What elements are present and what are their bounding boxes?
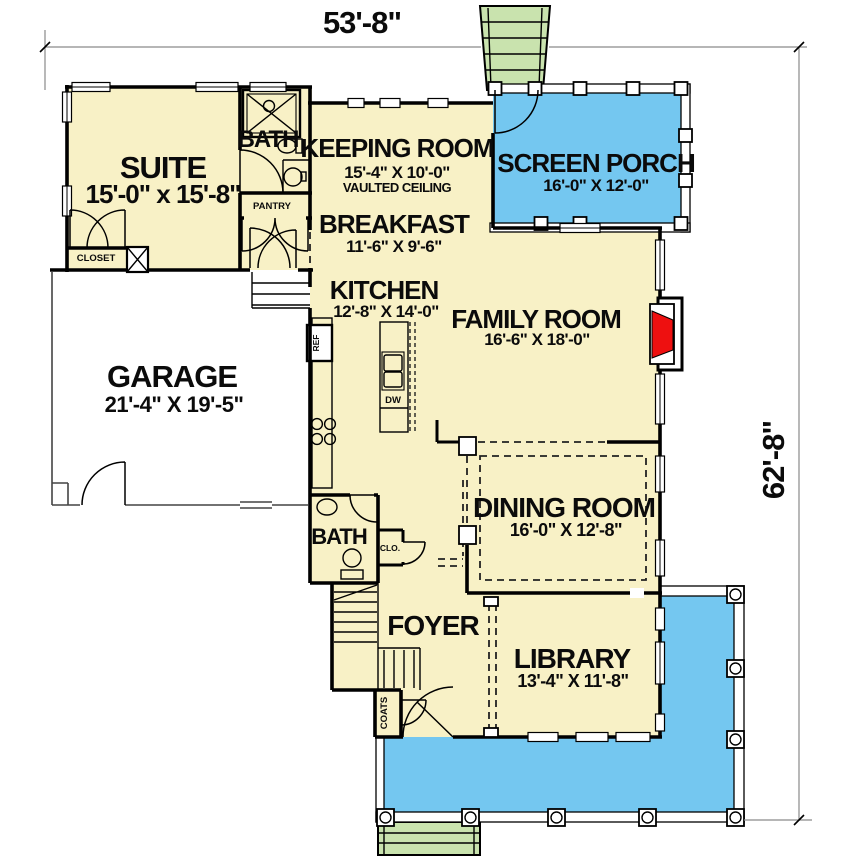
coats-label: COATS bbox=[379, 697, 390, 730]
dim-width-label: 53'-8" bbox=[323, 5, 401, 40]
library-dims: 13'-4" X 11'-8" bbox=[517, 671, 628, 691]
foyer-label: FOYER bbox=[387, 610, 479, 641]
dining-room-dims: 16'-0" X 12'-8" bbox=[510, 520, 622, 540]
porch-steps-bottom bbox=[378, 822, 480, 855]
porch-steps-top bbox=[480, 6, 550, 90]
keeping-room-label: KEEPING ROOM bbox=[300, 133, 493, 163]
screen-porch-label: SCREEN PORCH bbox=[497, 148, 695, 178]
screen-porch-dims: 16'-0" X 12'-0" bbox=[543, 176, 649, 195]
floor-plan-drawing: 53'-8" 62'-8" SUITE 15'-0" x 15'-8" BATH… bbox=[0, 0, 853, 858]
dw-label: DW bbox=[385, 395, 401, 406]
suite-bath-label: BATH bbox=[238, 126, 299, 153]
floor-plan-page: 53'-8" 62'-8" SUITE 15'-0" x 15'-8" BATH… bbox=[0, 0, 853, 858]
library-label: LIBRARY bbox=[514, 643, 632, 674]
dim-height-label: 62'-8" bbox=[756, 421, 791, 499]
garage-landing-steps bbox=[252, 272, 310, 308]
suite-dims: 15'-0" x 15'-8" bbox=[85, 179, 240, 209]
keeping-room-note: VAULTED CEILING bbox=[343, 180, 452, 195]
garage-dims: 21'-4" X 19'-5" bbox=[105, 392, 244, 417]
family-room-dims: 16'-6" X 18'-0" bbox=[484, 330, 590, 349]
garage-label: GARAGE bbox=[107, 359, 237, 394]
half-bath-label: BATH bbox=[311, 524, 367, 549]
dining-room-label: DINING ROOM bbox=[473, 492, 655, 523]
pantry-label: PANTRY bbox=[253, 201, 292, 212]
clo-label: CLO. bbox=[380, 543, 400, 553]
closet-label: CLOSET bbox=[77, 253, 116, 264]
breakfast-label: BREAKFAST bbox=[319, 209, 470, 239]
kitchen-label: KITCHEN bbox=[330, 275, 439, 305]
breakfast-dims: 11'-6" X 9'-6" bbox=[346, 237, 442, 256]
window-seat bbox=[127, 247, 148, 272]
ref-label: REF bbox=[311, 335, 321, 352]
fireplace bbox=[650, 298, 682, 370]
kitchen-dims: 12'-8" X 14'-0" bbox=[333, 302, 439, 321]
